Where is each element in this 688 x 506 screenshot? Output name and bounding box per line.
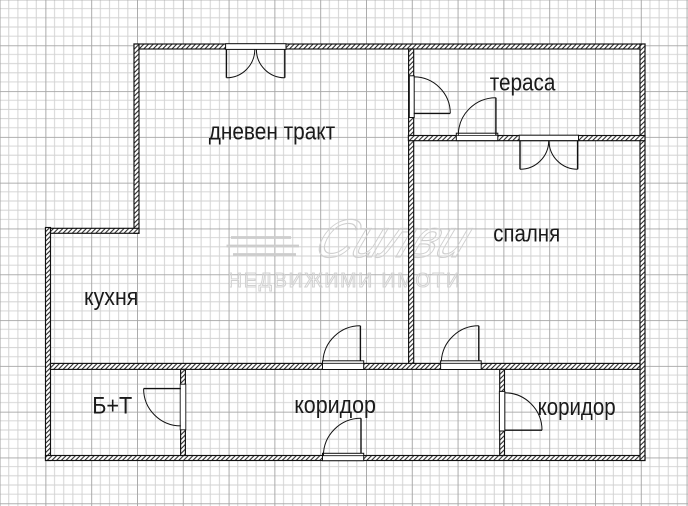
svg-text:спалня: спалня: [493, 220, 560, 247]
svg-text:Силви: Силви: [307, 208, 481, 269]
svg-text:тераса: тераса: [490, 70, 556, 97]
svg-text:Б+Т: Б+Т: [92, 392, 132, 419]
svg-text:коридор: коридор: [538, 394, 616, 421]
svg-text:НЕДВИЖИМИ ИМОТИ: НЕДВИЖИМИ ИМОТИ: [228, 270, 462, 292]
svg-text:коридор: коридор: [294, 392, 376, 419]
svg-text:кухня: кухня: [84, 284, 138, 311]
svg-text:дневен тракт: дневен тракт: [209, 118, 336, 145]
